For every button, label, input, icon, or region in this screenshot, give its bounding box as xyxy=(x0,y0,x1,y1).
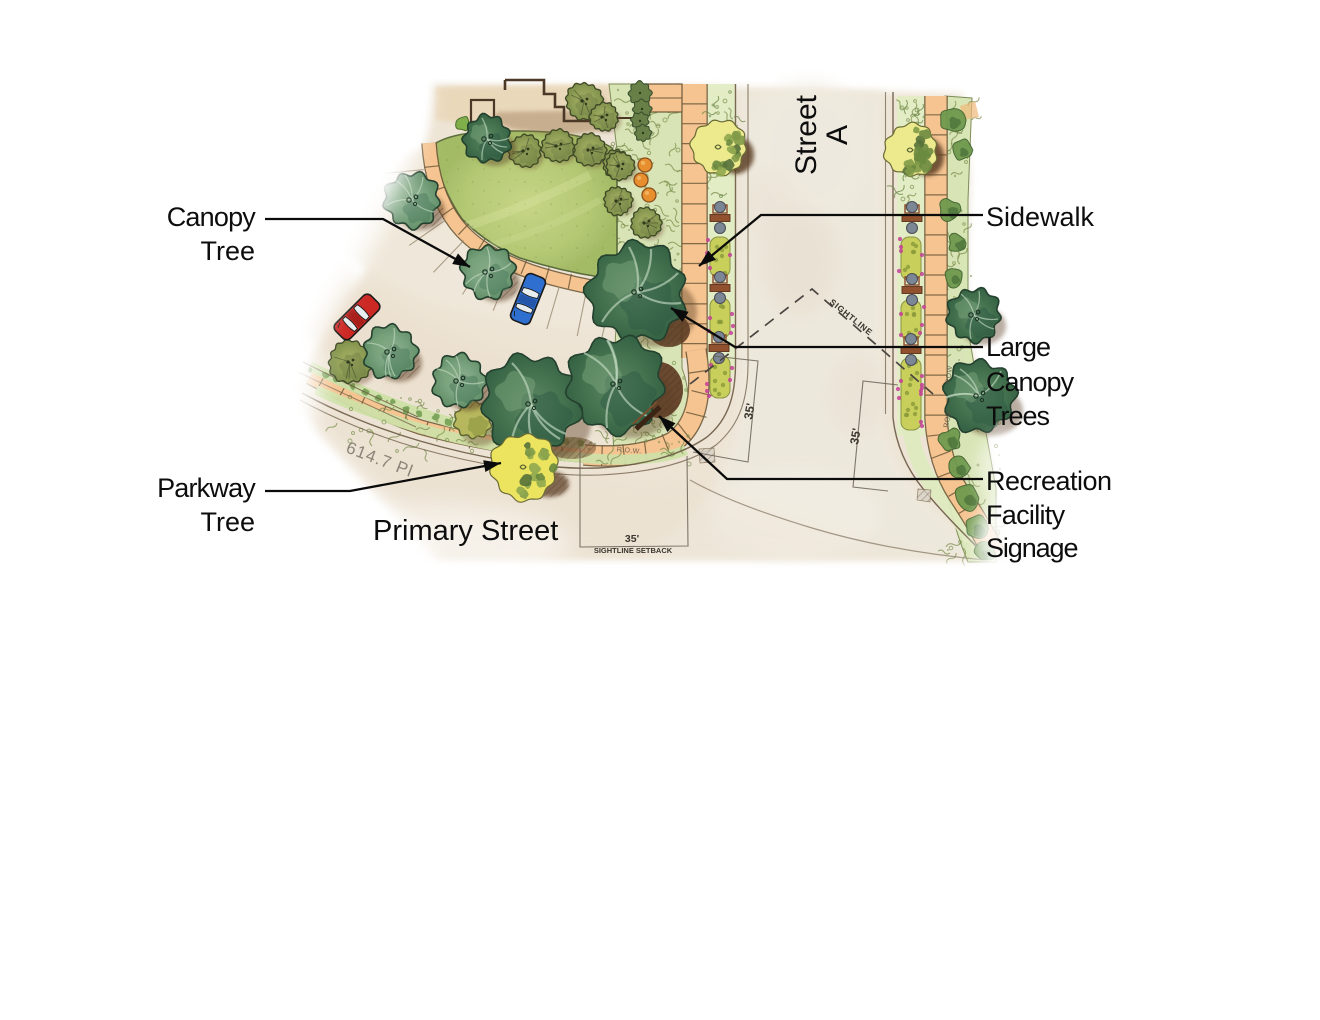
svg-text:Parkway: Parkway xyxy=(157,473,256,503)
svg-text:Tree: Tree xyxy=(200,507,255,537)
svg-text:Signage: Signage xyxy=(986,533,1077,563)
svg-text:Trees: Trees xyxy=(986,401,1050,431)
svg-text:Canopy: Canopy xyxy=(986,367,1075,397)
svg-text:Canopy: Canopy xyxy=(167,202,257,232)
svg-text:Large: Large xyxy=(986,332,1050,362)
svg-text:Street: Street xyxy=(790,94,823,175)
svg-text:Recreation: Recreation xyxy=(986,466,1112,496)
svg-text:Primary Street: Primary Street xyxy=(373,515,558,547)
svg-text:Sidewalk: Sidewalk xyxy=(986,202,1095,232)
svg-text:35': 35' xyxy=(741,402,758,421)
svg-text:35': 35' xyxy=(625,533,639,545)
svg-text:Tree: Tree xyxy=(200,236,255,266)
svg-text:A: A xyxy=(821,125,854,145)
svg-text:35': 35' xyxy=(847,427,864,446)
svg-text:SIGHTLINE SETBACK: SIGHTLINE SETBACK xyxy=(594,546,673,555)
svg-text:Facility: Facility xyxy=(986,500,1066,530)
